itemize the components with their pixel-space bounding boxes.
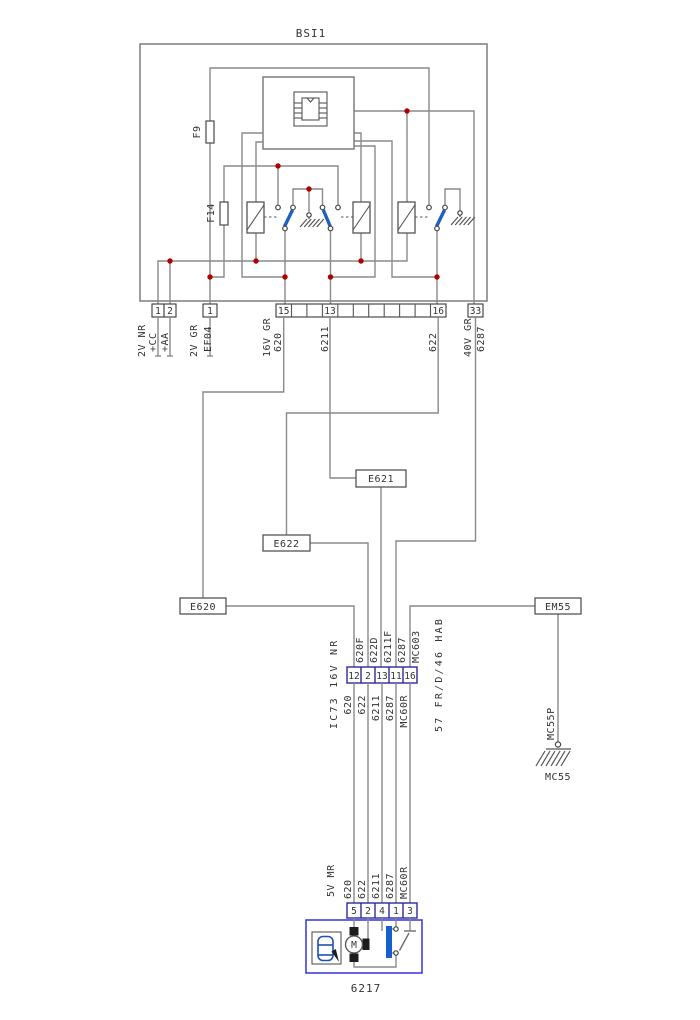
relay-contact-arm: [437, 210, 445, 227]
wire-label: 6287: [476, 326, 487, 352]
wire-label: 620: [273, 332, 284, 352]
relay-contact-arm: [323, 210, 330, 227]
ground-label: MC55: [545, 772, 571, 783]
relay-3: [398, 202, 447, 233]
ground-icon: [300, 213, 324, 227]
harness-note: 57 FR/D/46 HAB: [434, 617, 445, 732]
pin-number: 4: [379, 906, 385, 917]
ecu-chip-icon: [294, 92, 327, 126]
resistor-icon: [386, 926, 416, 958]
splice-e620: E620: [180, 598, 226, 614]
relay-contact-arm: [285, 210, 293, 227]
motor-icon: M: [346, 927, 370, 962]
connector-label: 5V MR: [326, 864, 337, 897]
svg-text:EM55: EM55: [545, 602, 571, 613]
relay-2: [320, 202, 370, 233]
pin-number: 11: [390, 671, 402, 682]
connector-label: IC73 16V NR: [329, 639, 340, 729]
wiring-diagram-page: BSI1: [0, 0, 700, 1020]
pin-number: 12: [348, 671, 359, 682]
pin-number: 3: [407, 906, 413, 917]
wire-label: 6211: [371, 695, 382, 721]
connector-5vmr: 5V MR 620 622 6211 6287 MC60R 5 2 4 1 3: [326, 864, 417, 918]
component-id: 6217: [351, 982, 382, 995]
bsi-title: BSI1: [296, 27, 327, 40]
connector-label: 40V GR: [463, 317, 474, 357]
ground-mc55: MC55P MC55: [536, 707, 571, 783]
pin-number: 2: [365, 906, 371, 917]
bsi-unit: BSI1: [140, 27, 487, 317]
pin-number: 33: [470, 306, 481, 317]
fuse-f9-icon: [206, 121, 214, 143]
wiring-diagram: BSI1: [0, 0, 700, 1020]
svg-text:E622: E622: [273, 539, 299, 550]
wire-label: 622: [428, 332, 439, 352]
ground-icon: [536, 749, 571, 766]
bsi-connector-pins: 1 2 1 15 13 16 33: [152, 304, 483, 317]
pin-number: 5: [351, 906, 357, 917]
wire-label: 622D: [369, 637, 380, 663]
pin-number: 2: [365, 671, 371, 682]
wire-label: EF04: [203, 326, 214, 352]
wire-label: MC603: [411, 630, 422, 663]
pin-number: 15: [278, 306, 289, 317]
wire-label: 6287: [397, 637, 408, 663]
pin-number: 1: [155, 306, 161, 317]
switch-arm: [400, 933, 410, 951]
pin-number: 13: [376, 671, 387, 682]
pin-number: 1: [393, 906, 399, 917]
splice-e621: E621: [356, 470, 406, 487]
connector-label: 2V GR: [189, 324, 200, 357]
splice-em55: EM55: [535, 598, 581, 614]
bsi-connector-labels: 2V NR +CC +AA 2V GR EF04 16V GR 620 6211…: [137, 317, 487, 357]
component-6217: M 6217: [306, 918, 422, 995]
ground-icon: [451, 211, 475, 225]
pin-number: 16: [404, 671, 416, 682]
wire-label: MC60R: [399, 866, 410, 899]
wire-label: 622: [357, 695, 368, 715]
pin-number: 1: [207, 306, 213, 317]
fuse-f14: F14: [206, 202, 228, 225]
connector-ic73: IC73 16V NR 620F 622D 6211F 6287 MC603 1…: [329, 617, 445, 732]
fuse-f14-label: F14: [206, 203, 217, 223]
pin-number: 13: [324, 306, 335, 317]
fuse-f9: F9: [192, 121, 214, 143]
car-icon: [312, 932, 341, 964]
wire-label: 6211F: [383, 630, 394, 663]
wire-label: 6211: [371, 873, 382, 899]
fuse-f14-icon: [220, 202, 228, 225]
bsi-ecu-box: [263, 77, 354, 149]
svg-text:E620: E620: [190, 602, 216, 613]
wire-label: MC60R: [399, 695, 410, 728]
wire-label: 620: [343, 879, 354, 899]
wire-label: 6287: [385, 695, 396, 721]
wire-label: +AA: [160, 332, 171, 352]
wire-label: 6287: [385, 873, 396, 899]
svg-text:E621: E621: [368, 474, 394, 485]
bsi-outline: [140, 44, 487, 301]
wire-label: MC55P: [546, 707, 557, 740]
connector-label: 16V GR: [262, 317, 273, 357]
wire-label: 622: [357, 879, 368, 899]
connector-label: 2V NR: [137, 324, 148, 357]
fuse-f9-label: F9: [192, 125, 203, 138]
motor-letter: M: [351, 940, 357, 951]
splice-e622: E622: [263, 535, 310, 551]
wire-label: 620F: [355, 637, 366, 663]
pin-number: 2: [167, 306, 173, 317]
bsi-internal-wiring: [158, 68, 474, 304]
wire-label: +CC: [148, 332, 159, 352]
wire-label: 620: [343, 695, 354, 715]
pin-number: 16: [432, 306, 444, 317]
